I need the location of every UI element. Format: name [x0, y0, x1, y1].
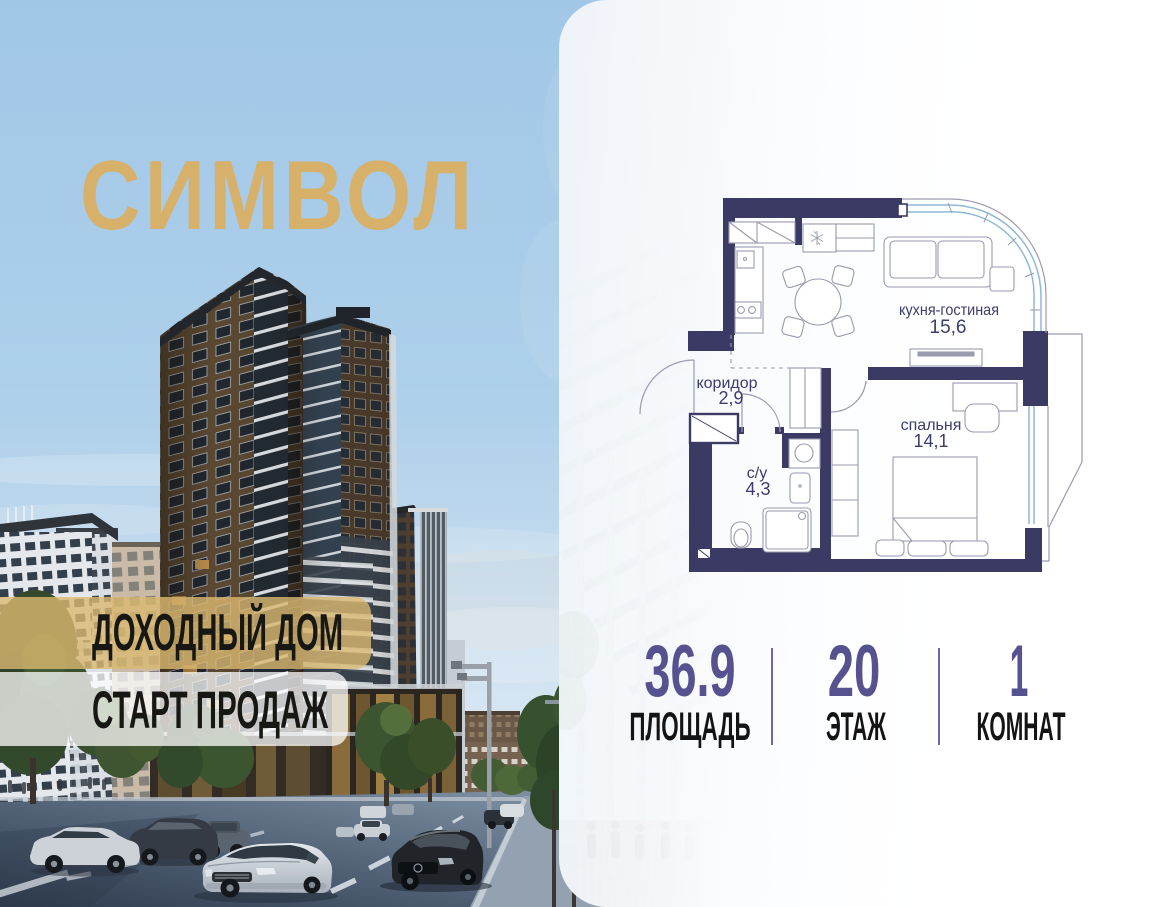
svg-text:15,6: 15,6	[930, 317, 967, 338]
svg-text:14,1: 14,1	[913, 431, 948, 451]
svg-text:2,9: 2,9	[718, 388, 743, 408]
svg-text:4,3: 4,3	[745, 479, 770, 499]
